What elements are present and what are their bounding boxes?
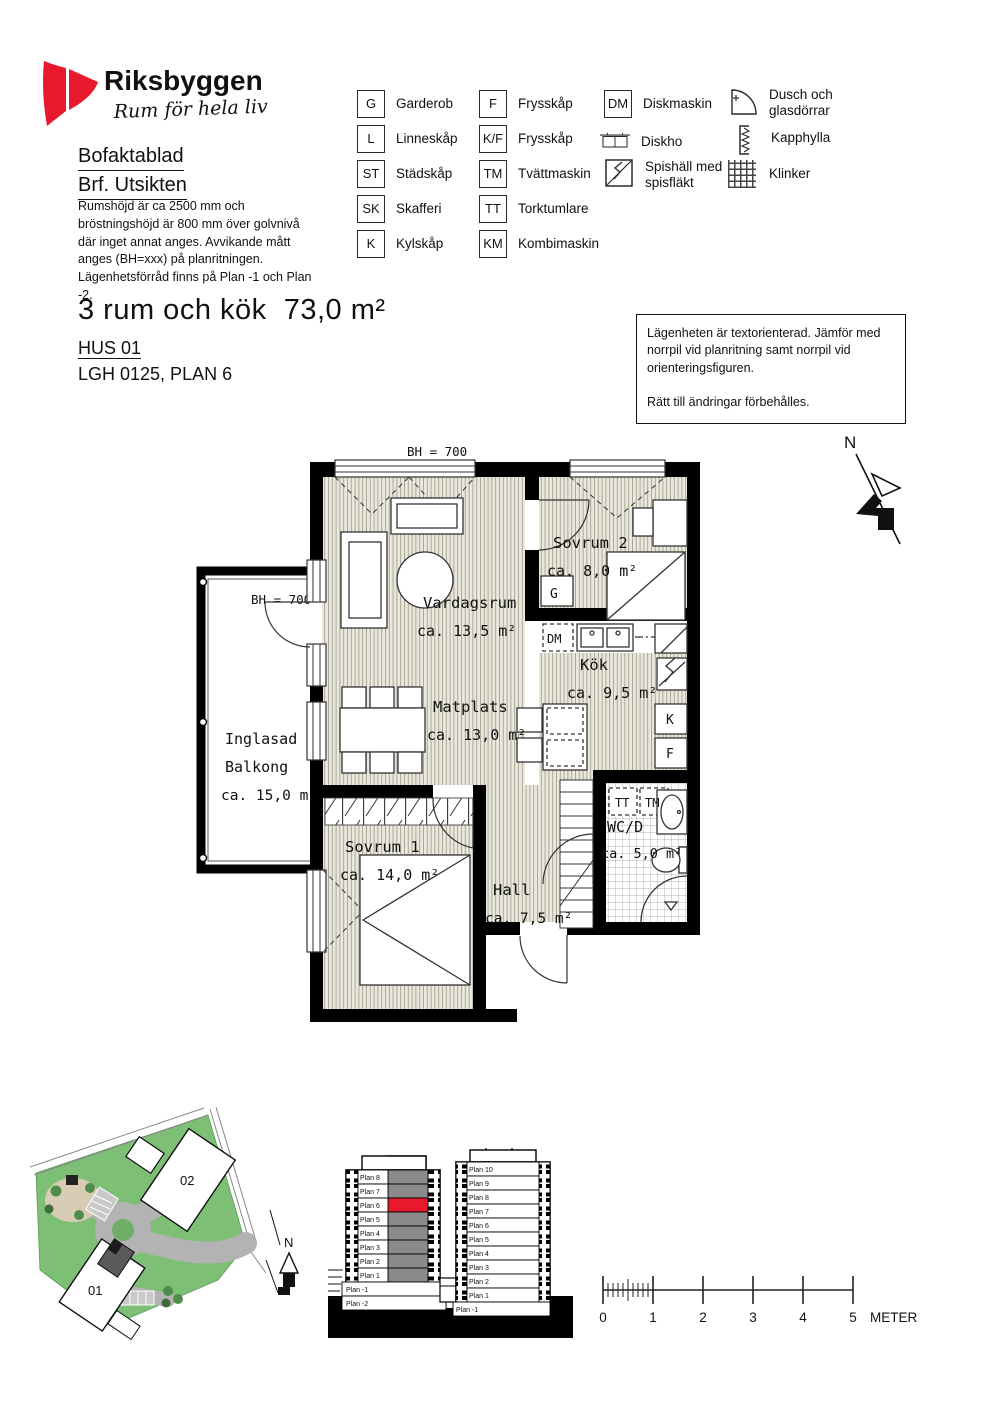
kok-area: ca. 9,5 m² — [567, 684, 657, 702]
legend-label: Städskåp — [396, 160, 452, 182]
balcony-name-1: Inglasad — [225, 730, 297, 748]
stairwell — [560, 780, 593, 928]
sovrum1-area: ca. 14,0 m² — [340, 866, 439, 884]
coatrack-icon — [730, 124, 760, 156]
sovrum2-area: ca. 8,0 m² — [547, 562, 637, 580]
legend-item-spishall: Spishäll med spisfläkt — [604, 158, 737, 190]
torktumlare-symbol: TT — [479, 195, 507, 223]
tiles-icon — [728, 160, 756, 188]
logo-mark-right — [69, 69, 98, 110]
highlighted-floor-plan6 — [388, 1198, 428, 1212]
legend-item-tvattmaskin: TMTvättmaskin — [479, 160, 591, 188]
legend-label: Skafferi — [396, 195, 442, 217]
dining-chair — [370, 752, 394, 773]
corner-counter — [655, 624, 687, 653]
floor-label: Plan -2 — [346, 1301, 368, 1308]
kylskap-symbol: K — [357, 230, 385, 258]
riksbyggen-logo: Riksbyggen Rum för hela livet — [38, 56, 268, 136]
dining-chair — [342, 752, 366, 773]
sofa-inner — [349, 542, 381, 618]
note-paragraph-1: Lägenheten är textorienterad. Jämför med… — [647, 325, 895, 377]
legend-item-diskmaskin: DMDiskmaskin — [604, 90, 712, 118]
document-description: Rumshöjd är ca 2500 mm och bröstningshöj… — [78, 198, 324, 305]
frysskap-symbol: F — [479, 90, 507, 118]
floor-label: Plan 8 — [469, 1195, 489, 1202]
connector-building — [440, 1278, 456, 1302]
balcony: BH = 700 Inglasad Balkong ca. 15,0 m² ö — [200, 571, 322, 892]
island-dashed-unit — [547, 740, 583, 766]
skafferi-symbol: SK — [357, 195, 385, 223]
legend-item-skafferi: SKSkafferi — [357, 195, 442, 223]
hob-icon — [604, 158, 634, 188]
legend-label: Kombimaskin — [518, 230, 599, 252]
elevation-hus01: Plan 8 Plan 7 Plan 6 Plan 5 Plan 4 Plan … — [342, 1156, 446, 1310]
legend-item-linneskap: LLinneskåp — [357, 125, 458, 153]
building-02-label: 02 — [180, 1173, 194, 1188]
matplats-name: Matplats — [433, 698, 508, 716]
north-head-solid — [856, 494, 894, 530]
document-title-line1: Bofaktablad — [78, 142, 184, 171]
legend-item-stadskap: STStädskåp — [357, 160, 452, 188]
legend-item-dusch: Dusch och glasdörrar — [728, 86, 849, 118]
legend-item-diskho: Diskho — [600, 128, 682, 154]
legend-item-kyl-frys: K/FFrysskåp — [479, 125, 573, 153]
north-label: N — [844, 433, 856, 452]
kok-name: Kök — [580, 656, 609, 674]
floor-label: Plan 8 — [360, 1175, 380, 1182]
floor-label: Plan 7 — [360, 1189, 380, 1196]
legend-label: Frysskåp — [518, 125, 573, 147]
playhouse — [66, 1175, 78, 1185]
legend-item-torktumlare: TTTorktumlare — [479, 195, 589, 223]
floor-label: Plan 3 — [469, 1265, 489, 1272]
island-dashed-unit — [547, 708, 583, 734]
matplats-area: ca. 13,0 m² — [427, 726, 526, 744]
garderob-marker: G — [550, 587, 558, 602]
floor-label: Plan 2 — [469, 1279, 489, 1286]
legend-label: Linneskåp — [396, 125, 458, 147]
legend-label: Frysskåp — [518, 90, 573, 112]
desk-chair — [633, 508, 653, 536]
legend-item-kapphylla: Kapphylla — [730, 124, 830, 156]
orientation-note: Lägenheten är textorienterad. Jämför med… — [636, 314, 906, 424]
sink-icon — [600, 128, 630, 154]
north-head-outline — [872, 474, 900, 496]
logo-tagline: Rum för hela livet — [112, 95, 268, 123]
legend-label: Diskho — [641, 128, 682, 150]
wcd-area: ca. 5,0 m² — [601, 846, 682, 862]
dining-chair — [342, 687, 366, 708]
scale-label-0: 0 — [599, 1310, 607, 1325]
grade-lines — [328, 1270, 343, 1298]
wcd-name: WC/D — [607, 818, 643, 836]
kyl-marker: K — [666, 713, 674, 728]
floor-label: Plan 1 — [469, 1293, 489, 1300]
scale-label-1: 1 — [649, 1310, 657, 1325]
scale-label-4: 4 — [799, 1310, 807, 1325]
house-number: HUS 01 — [78, 338, 141, 359]
tv-bench-inner — [397, 504, 457, 528]
scale-label-3: 3 — [749, 1310, 757, 1325]
legend-label: Klinker — [769, 160, 810, 182]
garderob-symbol: G — [357, 90, 385, 118]
scale-unit: METER — [870, 1310, 918, 1325]
vardagsrum-area: ca. 13,5 m² — [417, 622, 516, 640]
scale-bar: 0 1 2 3 4 5 METER — [598, 1262, 958, 1337]
kyl-frys-symbol: K/F — [479, 125, 507, 153]
legend-item-kombimaskin: KMKombimaskin — [479, 230, 599, 258]
frys-marker: F — [666, 747, 674, 762]
dining-chair — [398, 752, 422, 773]
sink-tap — [616, 631, 620, 635]
legend-item-kylskap: KKylskåp — [357, 230, 443, 258]
apartment-title: 3 rum och kök 73,0 m² — [78, 294, 386, 327]
vardagsrum-name: Vardagsrum — [423, 594, 516, 612]
hall-area: ca. 7,5 m² — [485, 911, 572, 927]
bh-top-label: BH = 700 — [407, 444, 467, 459]
floor-label: Plan 4 — [469, 1251, 489, 1258]
site-north-arrow: N — [266, 1210, 298, 1295]
scale-label-5: 5 — [849, 1310, 857, 1325]
tvattmaskin-symbol: TM — [479, 160, 507, 188]
house-label: HUS 01 — [78, 338, 141, 359]
scale-label-2: 2 — [699, 1310, 707, 1325]
floor-label: Plan 1 — [360, 1273, 380, 1280]
floor-label: Plan 3 — [360, 1245, 380, 1252]
kombimaskin-symbol: KM — [479, 230, 507, 258]
site-plan: 02 01 N — [18, 1095, 323, 1345]
desk — [653, 500, 687, 546]
building-01-label: 01 — [88, 1283, 102, 1298]
floor-plan: BH = 700 Inglasad Balkong ca. 15,0 m² ö — [195, 440, 715, 1040]
legend-label: Garderob — [396, 90, 453, 112]
tvattmaskin-marker: TM — [645, 796, 659, 810]
floor-label: Plan -1 — [456, 1307, 478, 1314]
elevation-hus02: Plan 10 Plan 9 Plan 8 Plan 7 Plan 6 Plan… — [453, 1148, 550, 1316]
legend-label: Kapphylla — [771, 124, 830, 146]
entry-door-arc — [520, 936, 567, 983]
bofaktablad-page: Riksbyggen Rum för hela livet Bofaktabla… — [0, 0, 992, 1403]
legend-label: Diskmaskin — [643, 90, 712, 112]
floor-label: Plan 10 — [469, 1167, 493, 1174]
dining-table — [340, 708, 425, 752]
balcony-area: ca. 15,0 m² — [221, 788, 317, 804]
shower-icon — [728, 86, 758, 116]
floor-label: Plan 5 — [469, 1237, 489, 1244]
floor-label: Plan 6 — [360, 1203, 380, 1210]
roundabout-island — [112, 1219, 134, 1241]
building-elevations: Plan 8 Plan 7 Plan 6 Plan 5 Plan 4 Plan … — [328, 1148, 578, 1343]
sovrum1-name: Sovrum 1 — [345, 838, 420, 856]
logo-mark-left — [43, 61, 66, 126]
balcony-bh-label: BH = 700 — [251, 592, 311, 607]
floor-label: Plan 2 — [360, 1259, 380, 1266]
linneskap-symbol: L — [357, 125, 385, 153]
north-arrow: N — [832, 422, 932, 562]
logo-wordmark: Riksbyggen — [104, 65, 263, 96]
floor-label: Plan 9 — [469, 1181, 489, 1188]
legend-label: Kylskåp — [396, 230, 443, 252]
diskmaskin-symbol: DM — [604, 90, 632, 118]
floor-label: Plan 6 — [469, 1223, 489, 1230]
floor-label: Plan -1 — [346, 1287, 368, 1294]
hall-name: Hall — [493, 881, 530, 899]
document-title-line2: Brf. Utsikten — [78, 171, 187, 200]
note-paragraph-2: Rätt till ändringar förbehålles. — [647, 394, 895, 411]
sovrum1-wardrobes — [325, 798, 473, 825]
unit-label: LGH 0125, PLAN 6 — [78, 364, 232, 385]
legend-item-frysskap: FFrysskåp — [479, 90, 573, 118]
legend-item-klinker: Klinker — [728, 160, 810, 188]
legend-label: Spishäll med spisfläkt — [645, 158, 737, 190]
dining-chair — [370, 687, 394, 708]
torktumlare-marker: TT — [615, 796, 629, 810]
document-title: Bofaktablad Brf. Utsikten — [78, 142, 187, 200]
washbasin-drain — [678, 811, 681, 814]
scale-labels: 0 1 2 3 4 5 METER — [599, 1310, 917, 1325]
diskmaskin-marker: DM — [547, 632, 561, 646]
legend-label: Torktumlare — [518, 195, 589, 217]
sovrum2-name: Sovrum 2 — [553, 534, 628, 552]
floor-label: Plan 7 — [469, 1209, 489, 1216]
dining-chair — [398, 687, 422, 708]
stadskap-symbol: ST — [357, 160, 385, 188]
floor-label: Plan 4 — [360, 1231, 380, 1238]
sink-tap — [590, 631, 594, 635]
floor-label: Plan 5 — [360, 1217, 380, 1224]
balcony-name-2: Balkong — [225, 758, 288, 776]
legend-item-garderob: GGarderob — [357, 90, 453, 118]
legend-label: Dusch och glasdörrar — [769, 86, 849, 118]
legend-label: Tvättmaskin — [518, 160, 591, 182]
site-north-label: N — [284, 1235, 293, 1250]
